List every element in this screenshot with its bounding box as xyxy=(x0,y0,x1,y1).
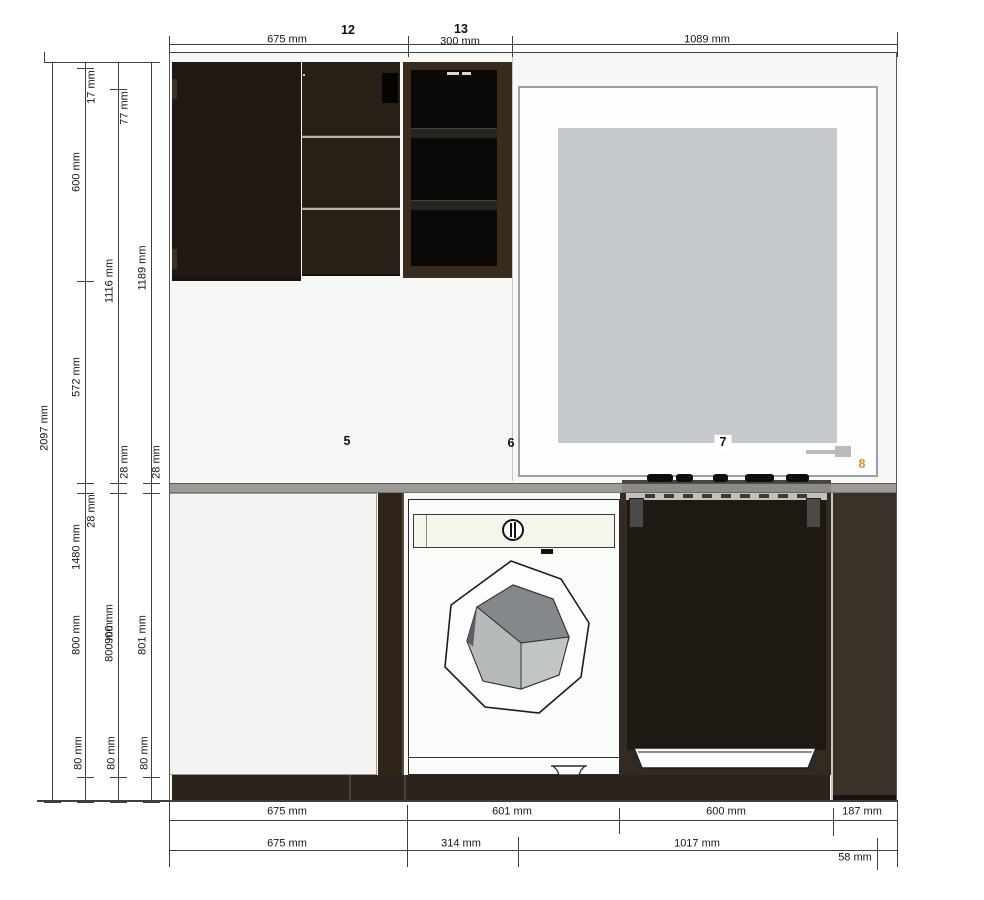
dimension-line xyxy=(169,820,897,821)
dimension-line xyxy=(85,62,86,802)
dim-left-1116: 1116 mm xyxy=(105,259,116,303)
dishwasher-housing[interactable] xyxy=(620,493,833,775)
dim-left-80-a: 80 mm xyxy=(74,736,85,770)
dimension-line xyxy=(897,800,898,867)
dimension-line xyxy=(143,483,160,484)
dimension-line xyxy=(118,62,119,802)
dimension-line xyxy=(169,52,897,53)
shelf-vent-dash xyxy=(447,72,459,75)
dim-top-width-300: 300 mm xyxy=(440,37,480,48)
hinge-right xyxy=(806,498,821,528)
wall-cabinet-open-shelf[interactable] xyxy=(403,62,513,278)
dim-left-800-a: 800 mm xyxy=(72,615,83,655)
dimension-line xyxy=(518,837,519,867)
hob-knob-bar[interactable] xyxy=(786,474,809,482)
dim-left-572: 572 mm xyxy=(72,357,83,397)
plinth-joint xyxy=(349,775,351,800)
hob-knob-bar[interactable] xyxy=(745,474,774,482)
dim-left-80-b: 80 mm xyxy=(107,736,118,770)
dim-left-28-b: 28 mm xyxy=(152,445,163,479)
dim-bottom-1017: 1017 mm xyxy=(674,839,720,850)
dimension-line xyxy=(44,62,158,63)
shelf xyxy=(411,128,497,138)
dimension-line xyxy=(77,62,94,63)
dim-left-600: 600 mm xyxy=(72,152,83,192)
dimension-line xyxy=(877,838,878,870)
hob-knob-bar[interactable] xyxy=(676,474,693,482)
wall-seam-line xyxy=(512,57,513,481)
dimension-line xyxy=(169,800,170,867)
dim-left-17: 17 mm xyxy=(87,70,98,104)
dimension-line xyxy=(896,52,897,800)
dim-left-1189: 1189 mm xyxy=(138,245,149,290)
right-filler-panel[interactable] xyxy=(833,493,897,800)
dim-left-28-a: 28 mm xyxy=(120,445,131,479)
hinge-mark-top xyxy=(172,79,177,99)
faucet-icon xyxy=(835,446,851,457)
kitchen-elevation-canvas: 675 mm12300 mm131089 mm2097 mm17 mm600 m… xyxy=(0,0,984,900)
dimension-line xyxy=(110,777,127,778)
dimension-line xyxy=(52,62,53,802)
dimension-line xyxy=(77,483,94,484)
dimension-line xyxy=(77,777,94,778)
dimension-line xyxy=(408,36,409,57)
dim-left-28-c: 28 mm xyxy=(87,494,98,528)
dimension-line xyxy=(110,493,127,494)
vent-dashes xyxy=(645,494,807,498)
wall-cabinet-closed[interactable] xyxy=(172,62,301,281)
dimension-line xyxy=(44,52,45,62)
dishwasher-door-panel[interactable] xyxy=(627,500,826,750)
dimension-line xyxy=(143,493,160,494)
dimension-line xyxy=(169,52,170,800)
dimension-line xyxy=(110,802,127,803)
dimension-line xyxy=(44,802,61,803)
hinge-left xyxy=(629,498,644,528)
filler-seam xyxy=(831,493,833,800)
dim-left-800-b: 800 mm xyxy=(105,622,116,662)
item-number-6: 6 xyxy=(508,437,515,450)
dimension-line xyxy=(143,777,160,778)
dim-top-width-675: 675 mm xyxy=(267,35,307,46)
plinth xyxy=(172,775,830,800)
dim-bottom-58: 58 mm xyxy=(838,853,872,864)
hinge-mark-bottom xyxy=(172,249,177,269)
dimension-line xyxy=(143,62,160,63)
dim-left-1480: 1480 mm xyxy=(72,524,83,570)
drawer-divider xyxy=(302,135,400,138)
tall-filler-panel[interactable] xyxy=(378,493,404,775)
dim-top-width-1089: 1089 mm xyxy=(684,35,730,46)
dimension-line xyxy=(110,62,127,63)
dim-bottom-314: 314 mm xyxy=(441,839,481,850)
shelf-cabinet-interior xyxy=(411,70,497,266)
dimension-line xyxy=(110,89,127,90)
dim-bottom-600: 600 mm xyxy=(706,807,746,818)
item-number-12: 12 xyxy=(341,24,355,37)
washer-door[interactable] xyxy=(433,557,597,721)
dimension-line xyxy=(407,805,408,867)
hob-counter-shade xyxy=(622,483,831,493)
dimension-line xyxy=(619,808,620,834)
dimension-line xyxy=(77,281,94,282)
washer-dial-knob[interactable] xyxy=(502,519,524,541)
dim-left-80-c: 80 mm xyxy=(140,736,151,770)
dimension-line xyxy=(833,808,834,836)
dim-bottom-675-row2: 675 mm xyxy=(267,839,307,850)
dimension-line xyxy=(169,850,897,851)
dim-bottom-601: 601 mm xyxy=(492,807,532,818)
dimension-line xyxy=(897,32,898,57)
hob-knob-bar[interactable] xyxy=(713,474,728,482)
item-number-7: 7 xyxy=(715,435,732,450)
item-number-5: 5 xyxy=(344,435,351,448)
dim-left-801: 801 mm xyxy=(138,615,149,655)
dim-left-77: 77 mm xyxy=(120,91,131,125)
panel-divider xyxy=(426,515,427,547)
wall-cabinet-drawers[interactable] xyxy=(302,62,400,276)
washer-base-line xyxy=(409,757,619,758)
item-number-8: 8 xyxy=(859,458,866,471)
shelf xyxy=(411,200,497,210)
faucet-spout-icon xyxy=(806,450,837,454)
dimension-line xyxy=(110,483,127,484)
hob-knob-bar[interactable] xyxy=(647,474,673,482)
dishwasher-tray[interactable] xyxy=(630,746,820,772)
window-panel[interactable] xyxy=(558,128,837,443)
base-cabinet-white[interactable] xyxy=(169,493,377,775)
dimension-line xyxy=(44,62,61,63)
dimension-line xyxy=(77,802,94,803)
shelf-vent-dash xyxy=(462,72,471,75)
dimension-line xyxy=(151,62,152,802)
dimension-line xyxy=(37,800,898,802)
knob-mark xyxy=(514,522,516,538)
washer-display-slot xyxy=(541,549,553,554)
cabinet-dot xyxy=(303,74,305,76)
dimension-line xyxy=(512,36,513,57)
drawer-divider xyxy=(302,207,400,210)
washing-machine[interactable] xyxy=(408,499,620,775)
item-number-13: 13 xyxy=(454,23,468,36)
cabinet-vent-panel xyxy=(382,73,398,103)
knob-mark xyxy=(510,523,512,537)
dimension-line xyxy=(143,802,160,803)
dim-bottom-675-row1: 675 mm xyxy=(267,807,307,818)
plinth-joint xyxy=(404,775,406,800)
dimension-line xyxy=(77,68,94,69)
dim-left-total-2097: 2097 mm xyxy=(40,405,51,451)
dim-bottom-187: 187 mm xyxy=(842,807,882,818)
